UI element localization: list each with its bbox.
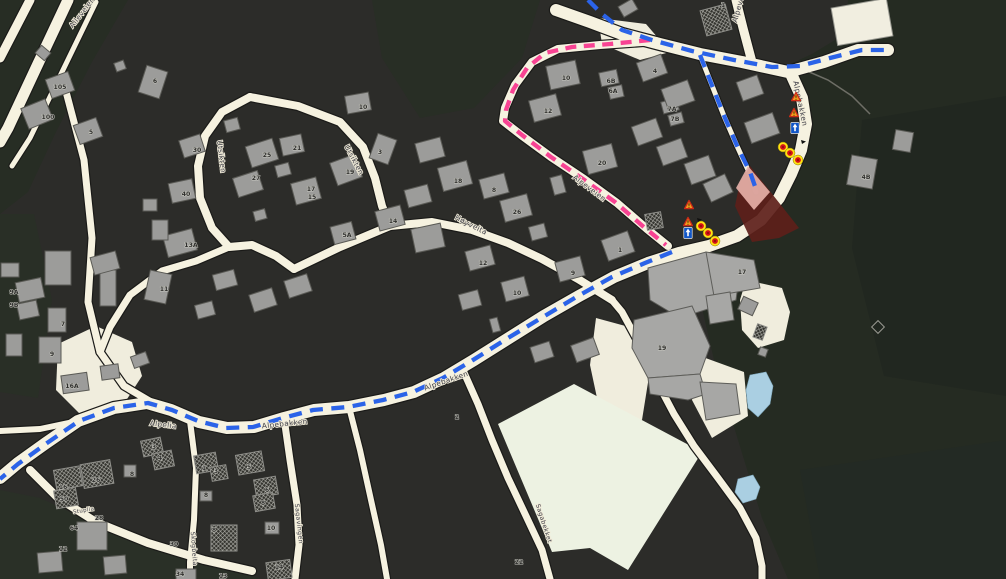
house-number: 16	[59, 484, 68, 491]
house-number: 25	[263, 152, 272, 159]
traffic-signal-icon[interactable]	[703, 228, 713, 238]
building-under-construction	[235, 451, 264, 475]
house-number: 6	[265, 487, 269, 494]
house-number: 34	[176, 571, 185, 578]
house-number: 8	[130, 471, 134, 478]
house-number: 5	[89, 129, 93, 136]
map-canvas[interactable]: 105100659A9B791116A304013A25272117151910…	[0, 0, 1006, 579]
house-number: 30	[170, 541, 179, 548]
house-number: 16A	[65, 383, 79, 390]
house-number: 10	[562, 75, 571, 82]
house-number: 11	[160, 286, 169, 293]
house-number: 17	[307, 186, 316, 193]
house-number: 2	[455, 414, 459, 421]
house-number: 12	[544, 108, 553, 115]
building-under-construction	[152, 450, 175, 470]
building	[152, 220, 168, 240]
building	[39, 337, 61, 363]
house-number: 6A	[608, 88, 617, 95]
building	[100, 270, 116, 306]
house-number: 8	[204, 492, 208, 499]
house-number: 12	[479, 260, 488, 267]
house-number: 9B	[9, 302, 18, 309]
house-number: 50	[60, 496, 69, 503]
house-number: 13	[219, 573, 228, 579]
house-number: 15	[308, 194, 317, 201]
building	[77, 522, 107, 550]
house-number: 1	[202, 465, 206, 472]
house-number: 7B	[670, 116, 679, 123]
house-number: 22	[515, 559, 524, 566]
house-number: 8	[261, 500, 265, 507]
building	[103, 555, 126, 575]
building-under-construction	[210, 465, 228, 482]
house-number: 14	[389, 218, 398, 225]
house-number: 4	[653, 68, 658, 75]
large-building	[706, 292, 734, 324]
house-number: 3	[214, 468, 218, 475]
house-number: 1	[721, 2, 725, 9]
traffic-signal-icon[interactable]	[793, 155, 803, 165]
building-under-construction	[80, 460, 114, 489]
traffic-signal-icon[interactable]	[785, 148, 795, 158]
house-number: 12	[59, 546, 68, 553]
building	[37, 551, 63, 573]
house-number: 27	[252, 175, 261, 182]
map-viewport[interactable]: 105100659A9B791116A304013A25272117151910…	[0, 0, 1006, 579]
house-number: 105	[54, 84, 67, 91]
house-number: 28	[95, 515, 104, 522]
house-number: 19	[658, 345, 667, 352]
house-number: 8	[492, 187, 496, 194]
building	[1, 263, 19, 277]
house-number: 26	[513, 209, 522, 216]
house-number: 64	[70, 525, 79, 532]
large-building	[700, 382, 740, 420]
one-way-sign-icon[interactable]	[684, 228, 692, 239]
house-number: 17	[738, 269, 747, 276]
house-number: 10	[359, 104, 368, 111]
building	[48, 308, 66, 332]
building	[100, 364, 120, 380]
house-number: 8	[212, 527, 216, 534]
house-number: 14	[275, 564, 284, 571]
house-number: 10	[513, 290, 522, 297]
building	[143, 199, 157, 211]
house-number: 26	[92, 477, 101, 484]
house-number: 9A	[9, 289, 18, 296]
house-number: 5	[247, 464, 251, 471]
house-number: 3	[378, 149, 382, 156]
house-number: 10	[267, 525, 276, 532]
house-number: 40	[182, 191, 191, 198]
house-number: 30	[193, 147, 202, 154]
building-under-construction	[645, 212, 664, 231]
house-number: 5A	[342, 232, 351, 239]
building	[892, 130, 913, 153]
house-number: 6	[153, 78, 157, 85]
house-number: 100	[42, 114, 56, 121]
one-way-sign-icon[interactable]	[791, 123, 799, 134]
house-number: 4B	[861, 174, 870, 181]
house-number: 9	[571, 270, 575, 277]
house-number: 1	[618, 247, 622, 254]
traffic-signal-icon[interactable]	[710, 236, 720, 246]
building	[17, 300, 40, 320]
house-number: 7A	[667, 106, 676, 113]
building	[45, 251, 71, 285]
house-number: 3	[152, 444, 156, 451]
house-number: 18	[454, 178, 463, 185]
building	[6, 334, 22, 356]
house-number: 21	[293, 145, 302, 152]
house-number: 4	[158, 455, 163, 462]
house-number: 19	[346, 169, 355, 176]
house-number: 7	[61, 321, 65, 328]
house-number: 6B	[606, 78, 615, 85]
building	[847, 155, 878, 189]
house-number: 9	[50, 351, 54, 358]
house-number: 13A	[184, 242, 198, 249]
house-number: 20	[598, 160, 607, 167]
